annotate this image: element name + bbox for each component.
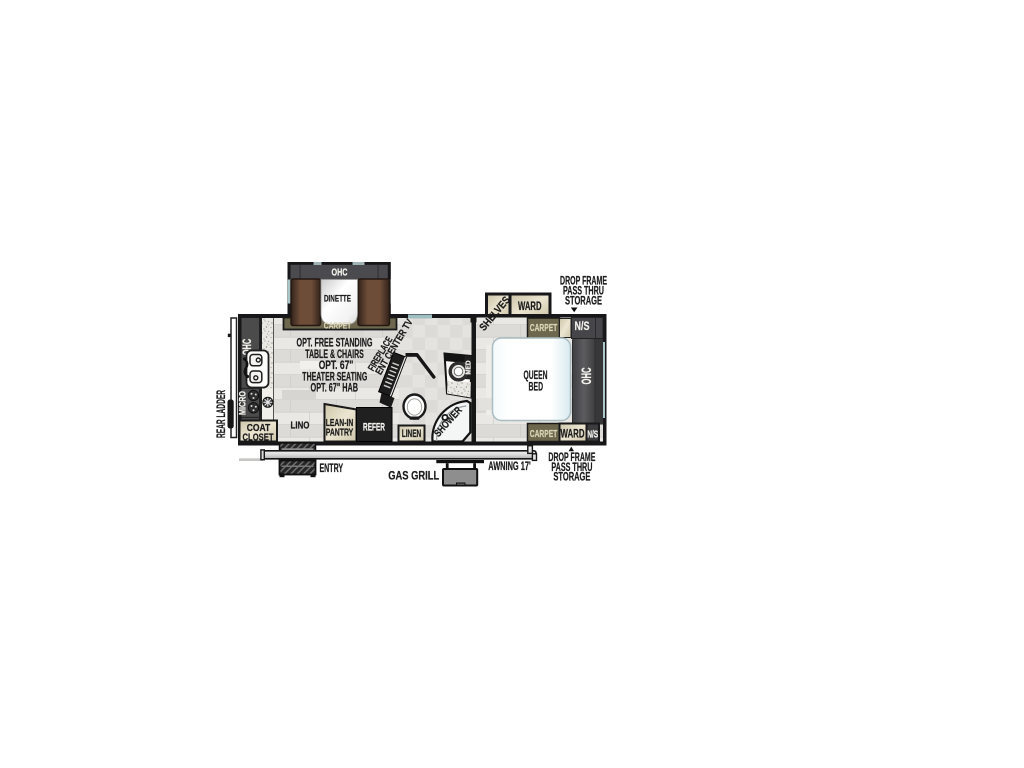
svg-text:STORAGE: STORAGE (553, 470, 590, 484)
svg-text:PANTRY: PANTRY (326, 428, 354, 439)
svg-text:REFER: REFER (363, 422, 385, 434)
svg-text:N/S: N/S (575, 319, 590, 333)
svg-text:OHC: OHC (332, 268, 348, 279)
svg-text:STORAGE: STORAGE (565, 293, 602, 307)
svg-text:MICRO: MICRO (238, 391, 249, 415)
svg-text:DINETTE: DINETTE (324, 294, 351, 305)
svg-text:OHC: OHC (579, 367, 594, 384)
svg-text:WARD: WARD (561, 427, 585, 441)
svg-text:CARPET: CARPET (530, 323, 558, 334)
svg-text:AWNING 17': AWNING 17' (488, 461, 531, 473)
svg-text:N/S: N/S (587, 429, 598, 441)
svg-text:REAR LADDER: REAR LADDER (214, 390, 228, 438)
svg-text:GAS GRILL: GAS GRILL (388, 469, 439, 483)
svg-text:ENTRY: ENTRY (319, 461, 343, 475)
svg-text:LINO: LINO (291, 420, 310, 432)
svg-text:OPT. 67" HAB: OPT. 67" HAB (311, 381, 359, 395)
svg-text:LINEN: LINEN (402, 428, 422, 440)
svg-text:CLOSET: CLOSET (243, 432, 274, 443)
svg-text:MED: MED (465, 361, 472, 375)
svg-text:WARD: WARD (518, 301, 542, 313)
svg-text:CARPET: CARPET (530, 429, 558, 440)
svg-text:BED: BED (529, 379, 544, 393)
svg-text:CARPET: CARPET (324, 321, 352, 331)
